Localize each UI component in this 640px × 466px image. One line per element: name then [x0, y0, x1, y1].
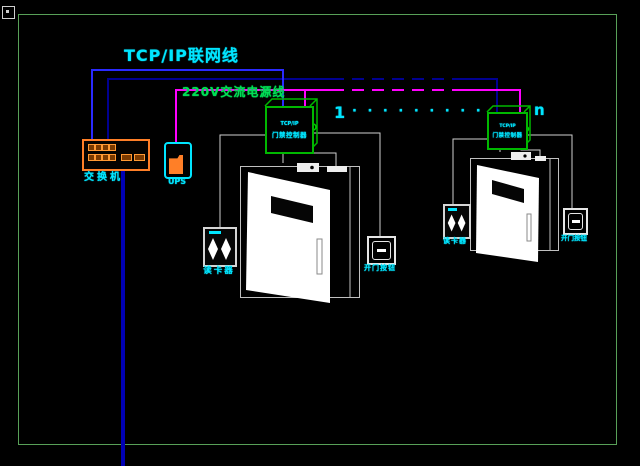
wiring-layer [0, 0, 640, 466]
ups-label: UPS [163, 177, 191, 186]
switch-label: 交换机 [84, 168, 146, 183]
door-handle-n [527, 214, 531, 241]
exit-button-face-icon [568, 213, 583, 230]
exit-button-n [563, 208, 588, 235]
switch-port [109, 144, 116, 151]
card-reader-n [443, 204, 471, 239]
switch-port [102, 144, 109, 151]
card-reader-1-label: 读卡器 [198, 264, 240, 276]
ups-device [164, 142, 192, 179]
exit-button-1-label: 开门按钮 [358, 263, 402, 273]
switch-port [95, 154, 102, 161]
door-index-n: n [534, 101, 545, 119]
door-lock-1 [297, 163, 319, 172]
ups-battery-icon [169, 155, 183, 174]
card-reader-1 [203, 227, 237, 267]
reader-diamonds-icon [447, 214, 467, 233]
exit-button-bar-icon [377, 249, 386, 252]
door-handle-1 [317, 239, 322, 274]
controller-brand: TCP/IP [499, 124, 515, 129]
switch-port [102, 154, 109, 161]
controller-name: 门禁控制器 [272, 129, 307, 139]
switch-port [95, 144, 102, 151]
exit-button-bar-icon [572, 220, 580, 223]
card-reader-n-label: 读卡器 [437, 236, 473, 246]
reader-diamonds-icon [207, 237, 233, 261]
cad-drawing-canvas: TCP/IP联网线 220V交流电源线 交换机 UPS TCP/IP 门禁控制器… [0, 0, 640, 466]
switch-uplink-port [121, 154, 132, 161]
door-ellipsis: · · · · · · · · · [352, 104, 484, 119]
controller-name: 门禁控制器 [492, 131, 522, 139]
controller-brand: TCP/IP [280, 121, 298, 127]
exit-button-1 [367, 236, 396, 265]
switch-port [88, 144, 95, 151]
switch-port [109, 154, 116, 161]
switch-port [88, 154, 95, 161]
network-drop-blue [92, 70, 283, 140]
door-index-1: 1 [334, 103, 345, 122]
network-line-title: TCP/IP联网线 [124, 42, 239, 66]
door-leaf-n [476, 152, 546, 262]
switch-uplink-port [134, 154, 145, 161]
network-switch-device [82, 139, 150, 171]
door-lock-n [511, 152, 531, 160]
corner-mark-icon [2, 6, 15, 19]
exit-button-face-icon [372, 241, 391, 260]
reader-display-icon [209, 231, 221, 234]
door-closer-n [535, 156, 546, 161]
door-leaf-1 [246, 163, 347, 303]
exit-button-n-label: 开门按钮 [553, 232, 595, 242]
reader-display-icon [448, 208, 457, 211]
door-controller-1: TCP/IP 门禁控制器 [265, 106, 314, 154]
door-closer-1 [327, 166, 347, 172]
door-controller-n: TCP/IP 门禁控制器 [487, 112, 528, 150]
power-line-title: 220V交流电源线 [182, 83, 285, 100]
